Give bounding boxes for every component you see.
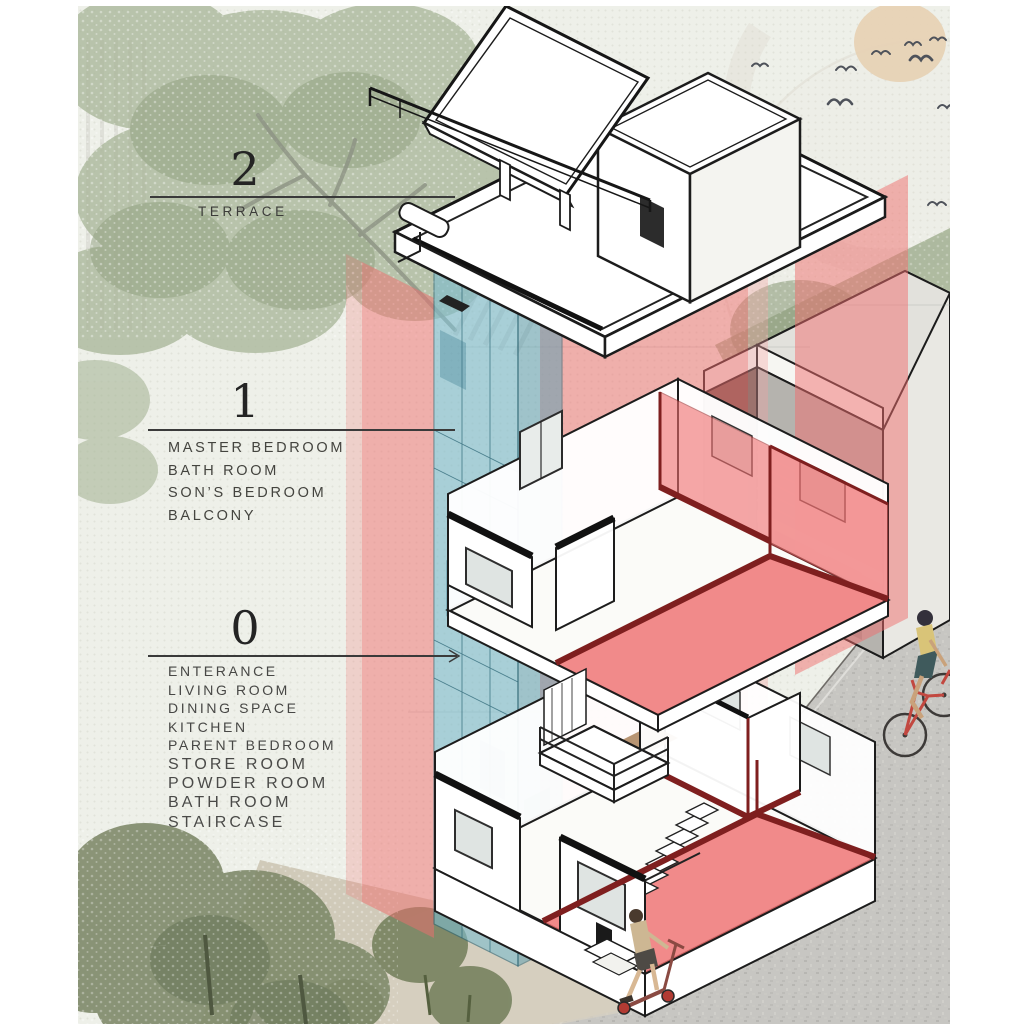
room-label: POWDER ROOM [168,774,336,793]
room-label: MASTER BEDROOM [168,437,345,460]
room-label: STORE ROOM [168,755,336,774]
level-0-number: 0 [213,605,277,651]
room-label: DINING SPACE [168,699,336,718]
level-1-room-list: MASTER BEDROOM BATH ROOM SON’S BEDROOM B… [168,437,345,527]
level-0-room-list: ENTERANCE LIVING ROOM DINING SPACE KITCH… [168,662,336,832]
room-label: BATH ROOM [168,460,345,483]
level-2-room-list: TERRACE [198,204,288,219]
level-2-number: 2 [213,146,277,192]
illustration [0,0,1024,1024]
room-label: BALCONY [168,505,345,528]
room-label: BATH ROOM [168,793,336,812]
architectural-diagram-canvas: 2 TERRACE 1 MASTER BEDROOM BATH ROOM SON… [0,0,1024,1024]
tree-icon [35,823,398,1024]
level-1-number: 1 [213,378,277,424]
room-label: STAIRCASE [168,813,336,832]
room-label: ENTERANCE [168,662,336,681]
room-label: KITCHEN [168,718,336,737]
room-label: LIVING ROOM [168,681,336,700]
room-label: SON’S BEDROOM [168,482,345,505]
room-label: PARENT BEDROOM [168,736,336,755]
sun-icon [854,2,946,82]
room-label: TERRACE [198,204,288,219]
